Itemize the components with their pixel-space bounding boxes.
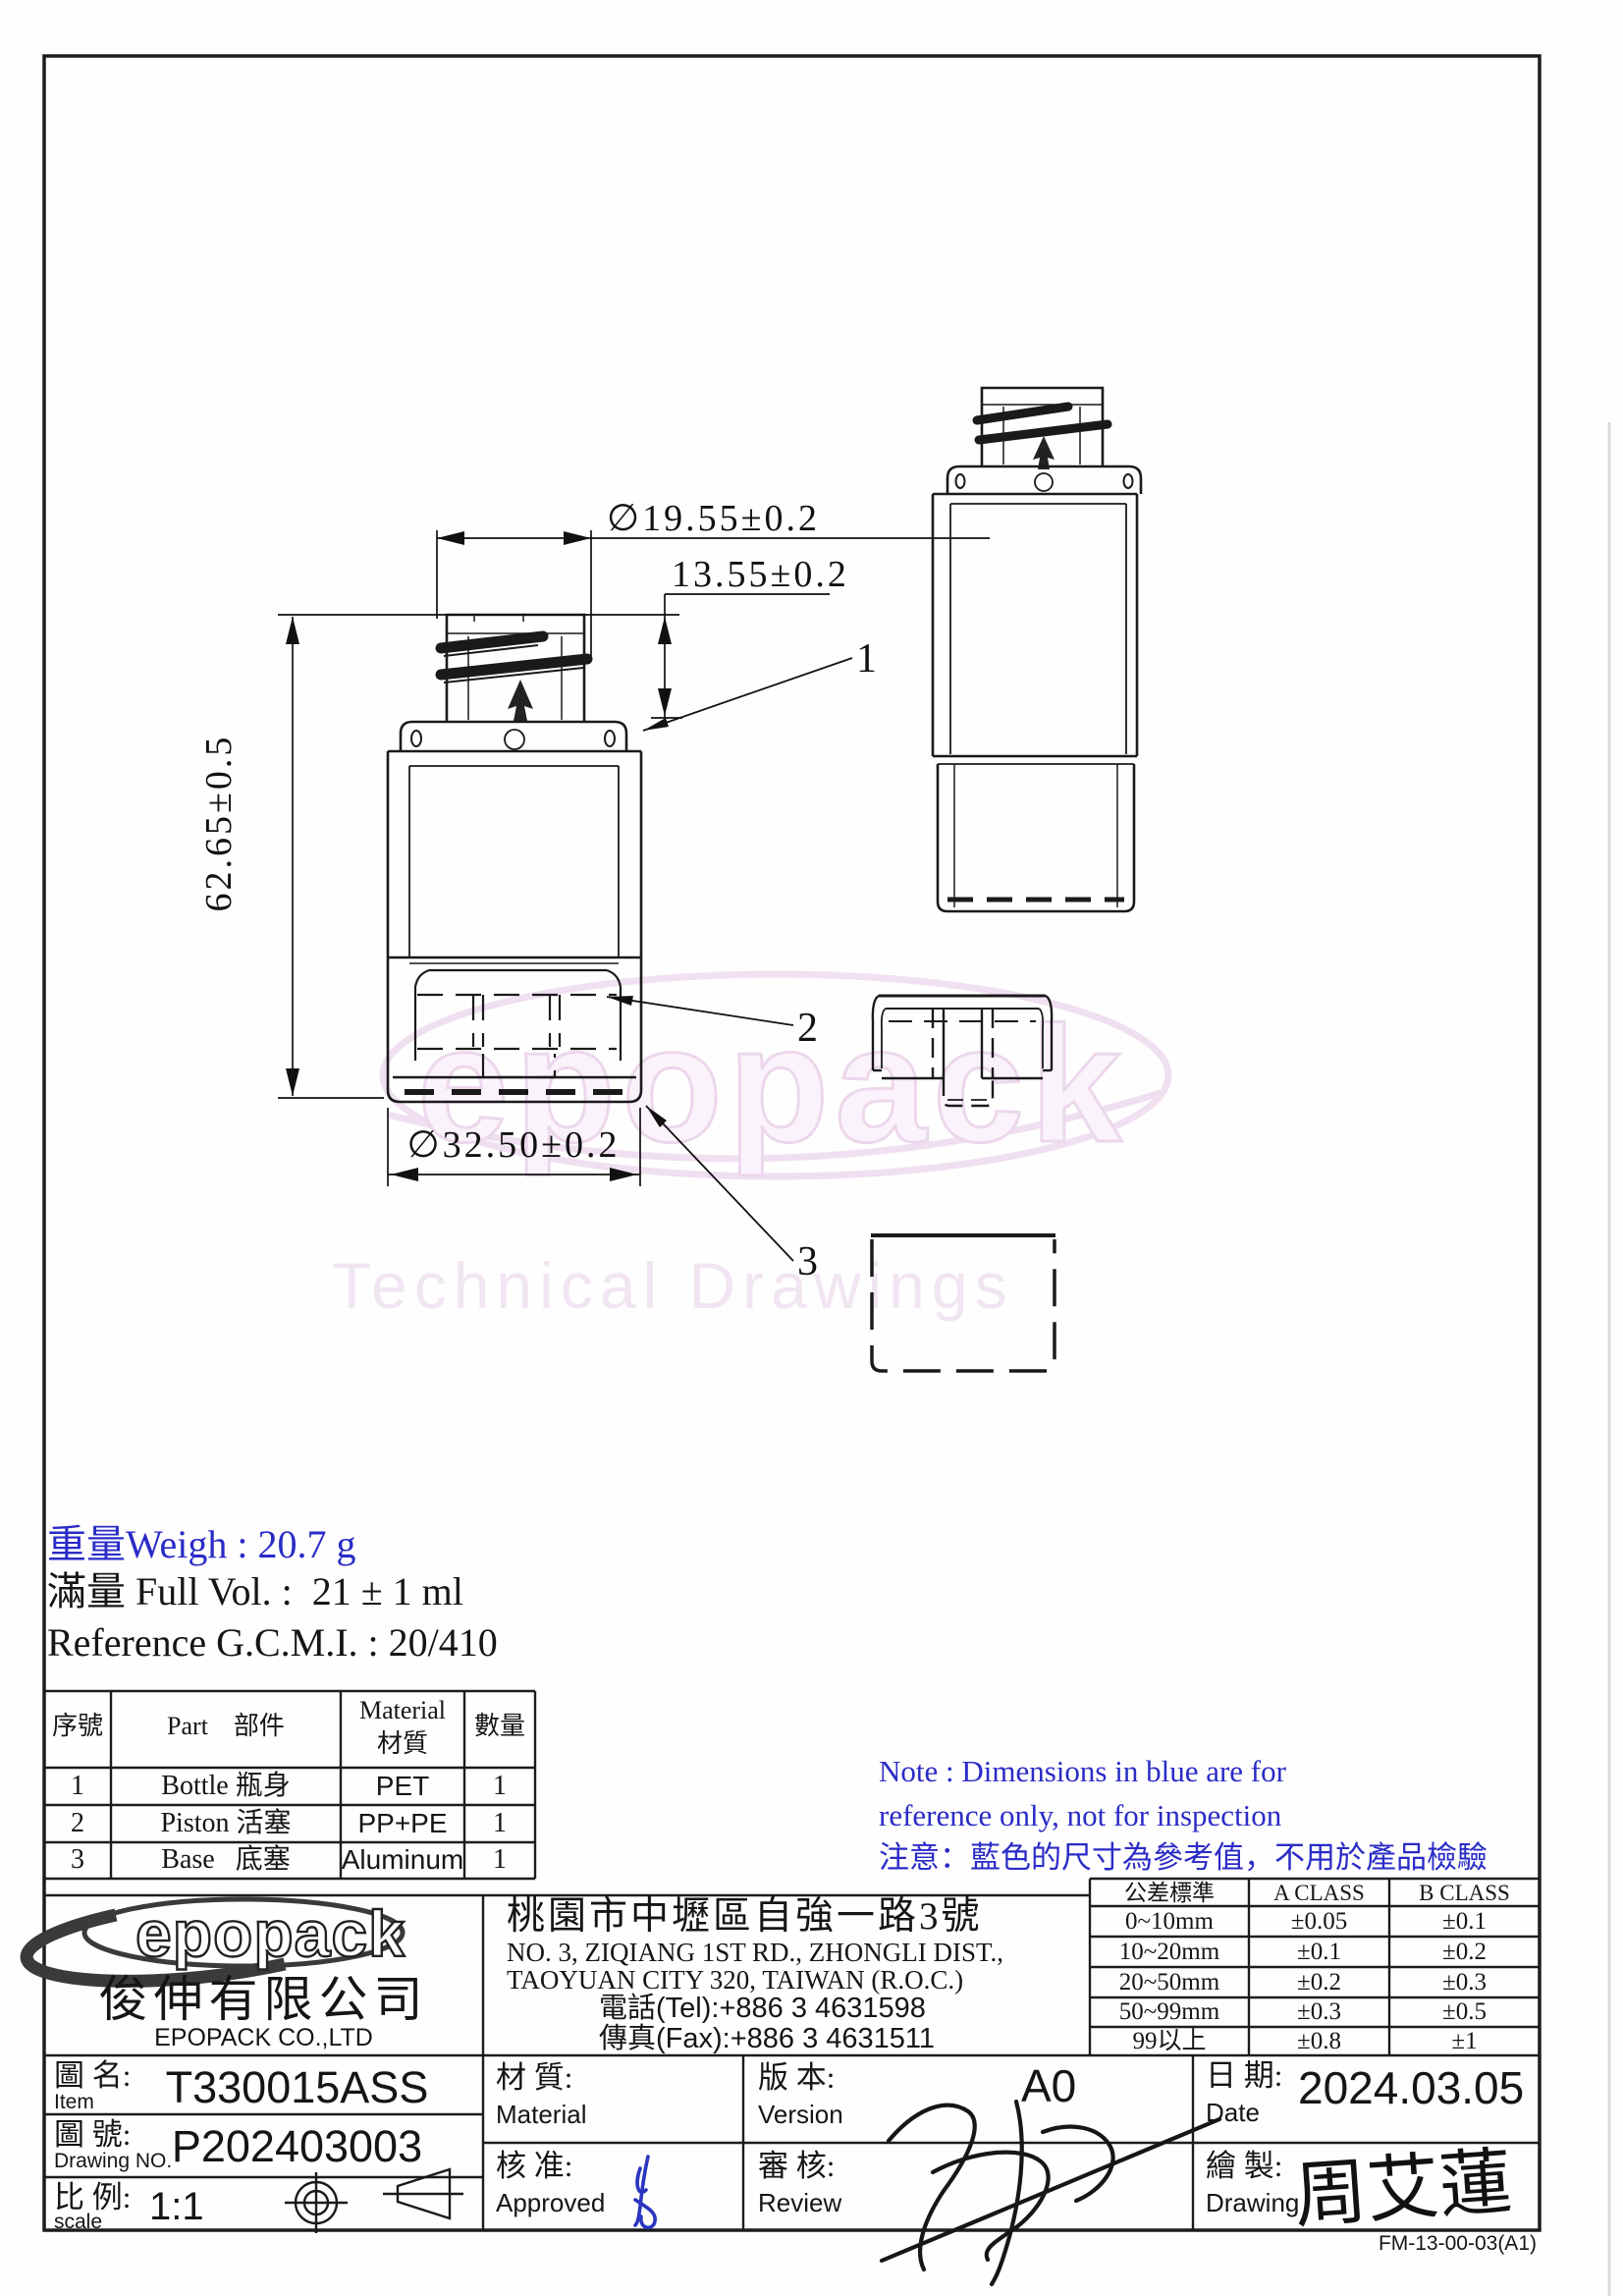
parts-row1-qty: 1 [464,1772,535,1800]
version-value: A0 [1021,2062,1076,2109]
callout-2-label: 2 [797,1006,818,1051]
technical-drawing-sheet: epopack Technical Drawings [0,0,1623,2296]
review-label-en: Review [758,2190,841,2216]
company-name-en: EPOPACK CO.,LTD [44,2025,483,2050]
tol-r1-a: ±0.05 [1249,1909,1389,1935]
parts-row3-material: Aluminum [341,1845,464,1874]
callout-1-label: 1 [856,636,877,682]
parts-row2-material: PP+PE [341,1809,464,1837]
full-volume-text: 滿量 Full Vol. : 21 ± 1 ml [47,1571,463,1613]
tol-r4-a: ±0.3 [1249,1999,1389,2025]
approved-label-zh: 核 准: [496,2151,572,2183]
approved-label-en: Approved [496,2190,605,2216]
tol-header-b-class: B CLASS [1389,1882,1540,1905]
form-number: FM-13-00-03(A1) [1306,2233,1537,2255]
approved-signature [635,2157,655,2227]
side-view-bottle [933,388,1141,911]
address-zh: 桃園市中壢區自強一路3號 [507,1897,983,1938]
note-line3: 注意：藍色的尺寸為參考值，不用於產品檢驗 [879,1842,1488,1875]
tol-r2-b: ±0.2 [1389,1940,1540,1965]
tol-r5-range: 99以上 [1090,2029,1249,2054]
parts-header-qty: 數量 [464,1713,535,1739]
address-tel: 電話(Tel):+886 3 4631598 [599,1994,926,2023]
material-label-en: Material [496,2102,586,2128]
parts-row2-qty: 1 [464,1809,535,1837]
parts-row3-part: Base 底塞 [111,1845,341,1874]
tol-r3-b: ±0.3 [1389,1970,1540,1995]
tol-r2-range: 10~20mm [1090,1940,1249,1965]
parts-header-part: Part 部件 [111,1713,341,1739]
scale-label-zh: 比 例: [54,2182,131,2214]
review-label-zh: 審 核: [758,2151,835,2183]
scale-label-en: scale [54,2212,102,2233]
watermark-caption-text: Technical Drawings [332,1249,1014,1322]
address-fax: 傳真(Fax):+886 3 4631511 [599,2024,935,2053]
parts-header-material-en: Material [341,1697,464,1723]
date-value: 2024.03.05 [1298,2064,1524,2111]
tol-r3-a: ±0.2 [1249,1970,1389,1995]
tol-r2-a: ±0.1 [1249,1940,1389,1965]
projection-symbol-icon [285,2169,463,2233]
company-name-zh: 俊伸有限公司 [44,1974,483,2026]
tol-r1-range: 0~10mm [1090,1909,1249,1935]
item-value: T330015ASS [111,2064,483,2110]
draw-label-en: Drawing [1206,2190,1299,2216]
item-label-en: Item [54,2092,94,2113]
tol-r4-b: ±0.5 [1389,1999,1540,2025]
dim-body-diameter: ∅32.50±0.2 [407,1124,621,1166]
mold-arrow-icon [508,680,533,721]
dim-total-height: 62.65±0.5 [198,735,240,912]
tol-header-standard: 公差標準 [1090,1882,1249,1905]
company-logo: epopack [27,1897,406,1981]
company-logo-text: epopack [135,1897,406,1970]
scale-value: 1:1 [149,2186,204,2227]
drawing-signature: 周艾蓮 [1291,2142,1514,2237]
weight-text: 重量Weigh : 20.7 g [47,1524,356,1565]
note-line2: reference only, not for inspection [879,1800,1281,1832]
parts-row2-part: Piston 活塞 [111,1809,341,1837]
dim-thread-diameter: ∅19.55±0.2 [607,498,820,539]
date-label-zh: 日 期: [1206,2060,1282,2093]
version-label-zh: 版 本: [758,2062,835,2095]
tol-r1-b: ±0.1 [1389,1909,1540,1935]
parts-header-no: 序號 [44,1713,111,1739]
address-en2: TAOYUAN CITY 320, TAIWAN (R.O.C.) [507,1966,963,1994]
tol-r3-range: 20~50mm [1090,1970,1249,1995]
material-label-zh: 材 質: [496,2062,572,2095]
parts-row2-no: 2 [44,1809,111,1837]
reference-gcmi-text: Reference G.C.M.I. : 20/410 [47,1622,498,1664]
version-label-en: Version [758,2102,843,2128]
address-en1: NO. 3, ZIQIANG 1ST RD., ZHONGLI DIST., [507,1939,1003,1966]
date-label-en: Date [1206,2100,1260,2126]
mold-arrow-icon [1033,436,1055,469]
drawing-no-value: P202403003 [111,2123,483,2169]
dim-neck-height: 13.55±0.2 [672,554,849,595]
callout-3-label: 3 [797,1239,818,1285]
parts-row3-qty: 1 [464,1845,535,1874]
parts-row1-part: Bottle 瓶身 [111,1772,341,1800]
note-line1: Note : Dimensions in blue are for [879,1756,1286,1788]
draw-label-zh: 繪 製: [1206,2151,1282,2183]
tol-r4-range: 50~99mm [1090,1999,1249,2025]
parts-row3-no: 3 [44,1845,111,1874]
parts-header-material-zh: 材質 [341,1730,464,1757]
tol-header-a-class: A CLASS [1249,1882,1389,1905]
tol-r5-a: ±0.8 [1249,2029,1389,2054]
parts-row1-no: 1 [44,1772,111,1800]
parts-row1-material: PET [341,1772,464,1800]
tol-r5-b: ±1 [1389,2029,1540,2054]
review-signature [882,2102,1219,2284]
